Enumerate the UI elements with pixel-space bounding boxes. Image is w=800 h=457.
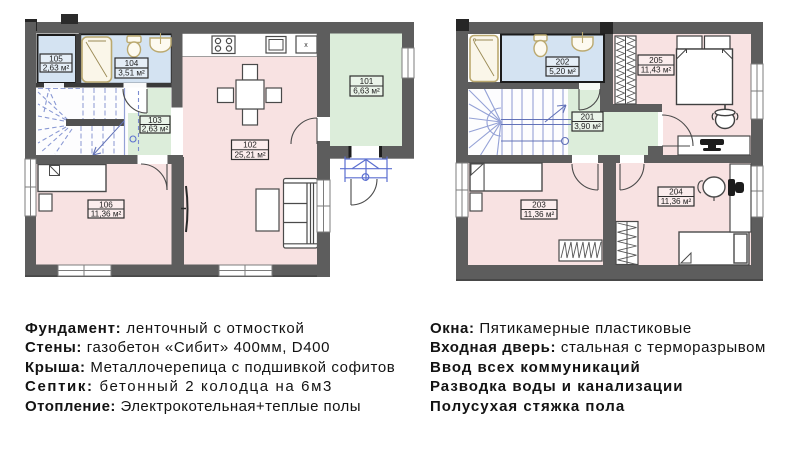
- svg-text:105: 105: [49, 55, 63, 64]
- svg-text:3,51 м²: 3,51 м²: [118, 69, 145, 78]
- svg-text:101: 101: [360, 77, 374, 86]
- svg-text:201: 201: [581, 113, 595, 122]
- svg-text:2,63 м²: 2,63 м²: [43, 64, 70, 73]
- svg-text:205: 205: [649, 56, 663, 65]
- svg-text:3,90 м²: 3,90 м²: [574, 122, 601, 131]
- svg-text:106: 106: [99, 201, 113, 210]
- svg-text:203: 203: [532, 201, 546, 210]
- svg-text:5,20 м²: 5,20 м²: [549, 67, 576, 76]
- svg-text:202: 202: [556, 58, 570, 67]
- svg-text:25,21 м²: 25,21 м²: [234, 150, 265, 159]
- svg-text:102: 102: [243, 141, 257, 150]
- svg-text:11,43 м²: 11,43 м²: [641, 66, 672, 75]
- svg-text:6,63 м²: 6,63 м²: [353, 87, 380, 96]
- svg-text:11,36 м²: 11,36 м²: [524, 210, 555, 219]
- svg-text:204: 204: [669, 188, 683, 197]
- svg-text:x: x: [304, 42, 308, 49]
- svg-text:11,36 м²: 11,36 м²: [91, 210, 122, 219]
- svg-text:2,63 м²: 2,63 м²: [142, 125, 169, 134]
- svg-text:104: 104: [125, 59, 139, 68]
- svg-text:11,36 м²: 11,36 м²: [661, 197, 692, 206]
